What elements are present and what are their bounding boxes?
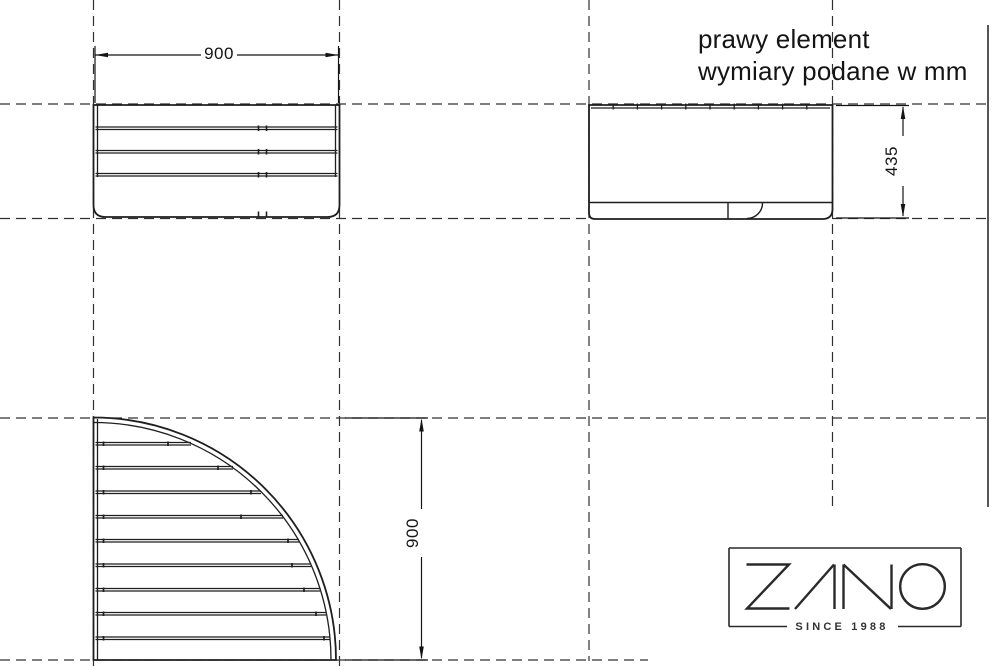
dim-label-plan-depth: 900: [403, 518, 423, 548]
dim-label-side-height: 435: [882, 146, 902, 176]
letter-z: [747, 565, 790, 609]
arrowhead-up: [901, 106, 906, 119]
front-view-outline: [94, 105, 340, 217]
dim-label-front-width: 900: [204, 44, 234, 64]
letter-o: [900, 564, 945, 609]
arrowhead-down: [419, 647, 424, 660]
letter-n: [844, 565, 892, 610]
zano-wordmark: [747, 564, 945, 609]
drawing-units-note: wymiary podane w mm: [698, 56, 968, 87]
arrowhead-up: [419, 419, 424, 432]
plan-view: [94, 418, 337, 661]
drawing-linework: [0, 0, 1000, 667]
front-view: [94, 105, 340, 217]
arrowhead-left: [95, 53, 108, 58]
plan-view-outline: [94, 418, 337, 661]
letter-a: [795, 565, 835, 610]
logo-border: [729, 548, 961, 627]
drawing-title: prawy element: [698, 24, 870, 55]
arrowhead-right: [326, 53, 339, 58]
logo-tagline: SINCE 1988: [795, 621, 888, 633]
zano-logo: [729, 548, 961, 627]
side-view: [589, 104, 833, 220]
arrowhead-down: [901, 204, 906, 217]
technical-drawing-sheet: prawy element wymiary podane w mm 900 43…: [0, 0, 1000, 667]
